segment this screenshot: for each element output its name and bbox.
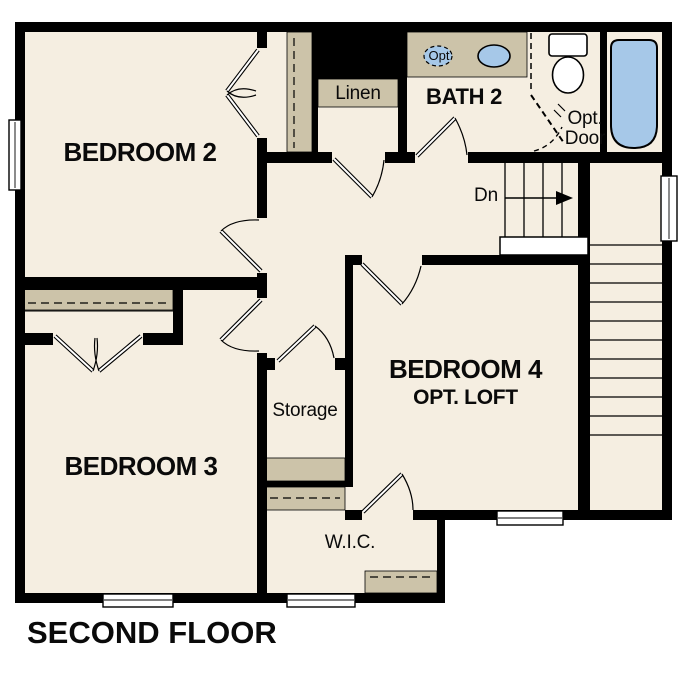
optional-sink-label: Opt — [423, 49, 455, 63]
bedroom-2-label: BEDROOM 2 — [25, 139, 255, 166]
bathtub-icon — [611, 40, 657, 148]
page-title: SECOND FLOOR — [27, 617, 277, 650]
optional-door-label: Opt. Door — [556, 109, 614, 149]
bath-2-label: BATH 2 — [405, 85, 523, 108]
window-wic — [287, 594, 355, 607]
storage-label: Storage — [263, 401, 347, 421]
bedroom-4-sublabel: OPT. LOFT — [353, 387, 578, 409]
linen-label: Linen — [318, 84, 398, 104]
wic-shelf-bottom — [365, 571, 437, 593]
floor-plan: BEDROOM 2 BEDROOM 3 BEDROOM 4 OPT. LOFT … — [0, 0, 687, 687]
wic-label: W.I.C. — [290, 533, 410, 553]
sink-icon — [478, 45, 510, 67]
bedroom-3-label: BEDROOM 3 — [25, 453, 257, 480]
bedroom-4-label: BEDROOM 4 — [353, 356, 578, 383]
bedroom3-closet-shelf — [22, 288, 173, 310]
window-bedroom3 — [103, 594, 173, 607]
storage-shelf — [265, 458, 345, 481]
stairs-down-label: Dn — [470, 186, 502, 206]
stair-landing — [500, 237, 588, 255]
bedroom2-closet-shelf — [287, 32, 312, 152]
